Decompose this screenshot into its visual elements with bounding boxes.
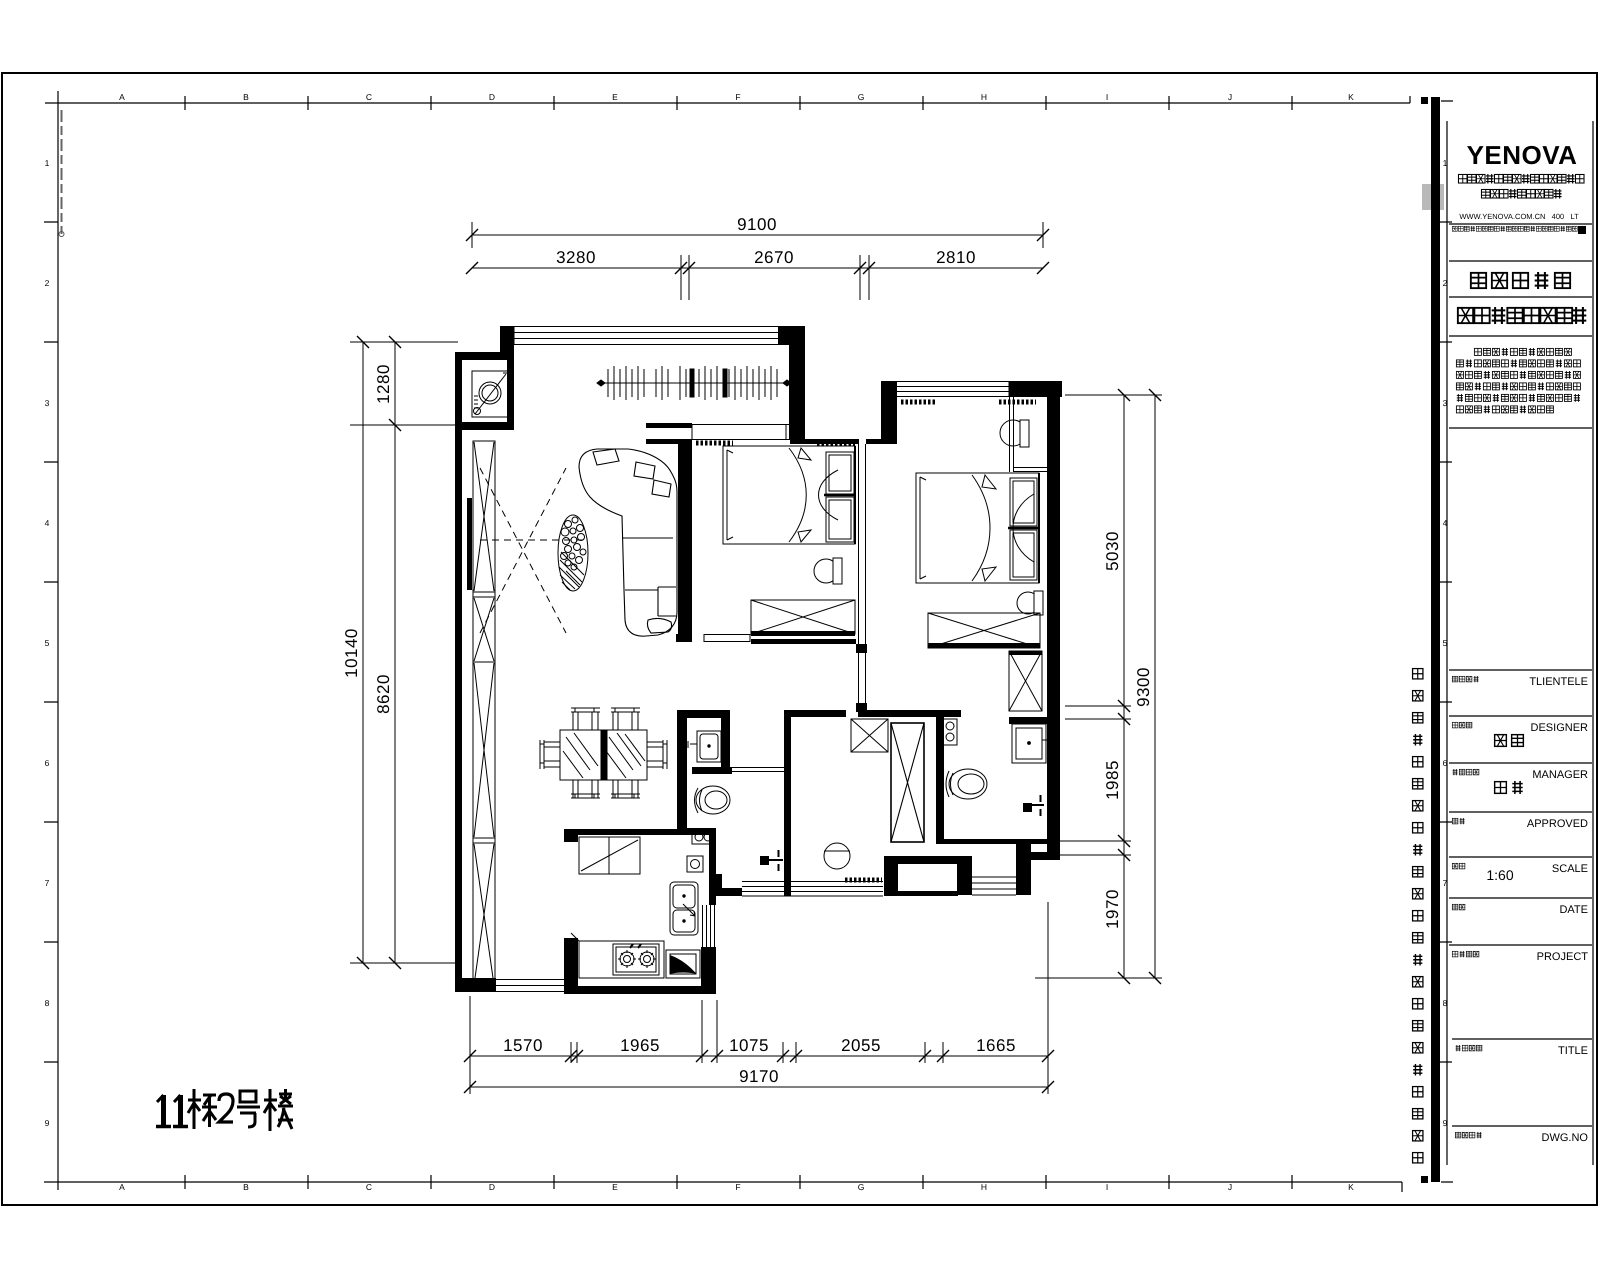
svg-text:7: 7 — [45, 878, 50, 888]
svg-text:K: K — [1348, 1182, 1354, 1192]
svg-text:1965: 1965 — [620, 1036, 660, 1055]
svg-text:6: 6 — [45, 758, 50, 768]
svg-text:G: G — [858, 92, 865, 102]
svg-text:G: G — [858, 1182, 865, 1192]
svg-text:9300: 9300 — [1134, 667, 1153, 707]
svg-text:1: 1 — [45, 158, 50, 168]
svg-text:SCALE: SCALE — [1552, 863, 1588, 875]
svg-text:1:60: 1:60 — [1486, 867, 1513, 883]
svg-text:2670: 2670 — [754, 248, 794, 267]
svg-text:2055: 2055 — [841, 1036, 881, 1055]
svg-text:E: E — [612, 92, 618, 102]
svg-text:3280: 3280 — [556, 248, 596, 267]
svg-text:C: C — [366, 92, 372, 102]
svg-text:1280: 1280 — [374, 364, 393, 404]
svg-text:YENOVA: YENOVA — [1467, 140, 1578, 170]
svg-text:J: J — [1228, 1182, 1232, 1192]
svg-text:F: F — [735, 92, 740, 102]
svg-text:1970: 1970 — [1103, 889, 1122, 929]
svg-text:D: D — [489, 92, 495, 102]
svg-text:10140: 10140 — [342, 628, 361, 678]
svg-text:K: K — [1348, 92, 1354, 102]
svg-text:8: 8 — [45, 998, 50, 1008]
svg-text:1570: 1570 — [503, 1036, 543, 1055]
svg-text:8620: 8620 — [374, 674, 393, 714]
svg-text:9100: 9100 — [737, 215, 777, 234]
svg-text:1665: 1665 — [976, 1036, 1016, 1055]
svg-text:MANAGER: MANAGER — [1532, 769, 1588, 781]
svg-text:TITLE: TITLE — [1558, 1045, 1588, 1057]
svg-text:9170: 9170 — [739, 1067, 779, 1086]
svg-text:I: I — [1106, 92, 1108, 102]
svg-text:2810: 2810 — [936, 248, 976, 267]
svg-text:B: B — [243, 92, 249, 102]
svg-text:5: 5 — [45, 638, 50, 648]
svg-text:I: I — [1106, 1182, 1108, 1192]
svg-text:F: F — [735, 1182, 740, 1192]
svg-text:DATE: DATE — [1559, 904, 1588, 916]
svg-text:2: 2 — [45, 278, 50, 288]
svg-text:B: B — [243, 1182, 249, 1192]
svg-text:9: 9 — [45, 1118, 50, 1128]
svg-text:DWG.NO: DWG.NO — [1542, 1132, 1589, 1144]
svg-text:J: J — [1228, 92, 1232, 102]
svg-text:PROJECT: PROJECT — [1537, 951, 1589, 963]
svg-text:TLIENTELE: TLIENTELE — [1529, 676, 1588, 688]
svg-text:1075: 1075 — [729, 1036, 769, 1055]
svg-text:D: D — [489, 1182, 495, 1192]
svg-text:APPROVED: APPROVED — [1527, 818, 1588, 830]
svg-text:E: E — [612, 1182, 618, 1192]
svg-text:WWW.YENOVA.COM.CN 400 LT: WWW.YENOVA.COM.CN 400 LT — [1459, 212, 1579, 221]
svg-text:1985: 1985 — [1103, 760, 1122, 800]
svg-text:A: A — [119, 92, 125, 102]
svg-text:H: H — [981, 1182, 987, 1192]
svg-text:DESIGNER: DESIGNER — [1531, 722, 1589, 734]
svg-text:A: A — [119, 1182, 125, 1192]
svg-text:3: 3 — [45, 398, 50, 408]
svg-text:H: H — [981, 92, 987, 102]
svg-text:C: C — [366, 1182, 372, 1192]
svg-text:5030: 5030 — [1103, 531, 1122, 571]
svg-text:4: 4 — [45, 518, 50, 528]
